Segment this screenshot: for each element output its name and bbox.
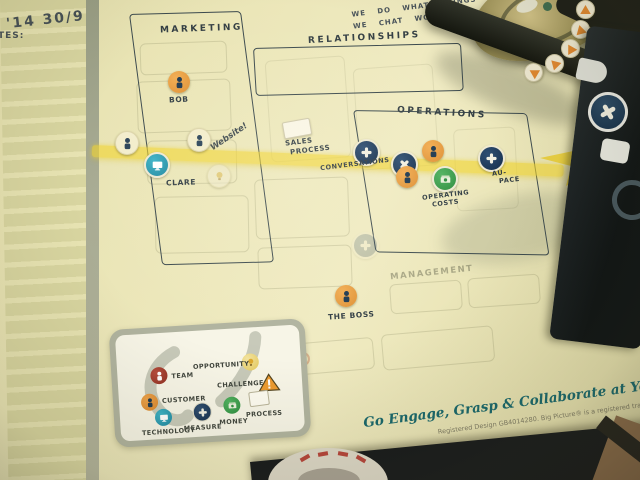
opportunity-bulb-icon: [207, 164, 231, 188]
team-icon: [187, 128, 211, 152]
printed-section-title: MANAGEMENT: [390, 264, 474, 283]
process-rectangle-icon: [248, 390, 270, 407]
team-icon: [115, 131, 139, 155]
template-cell: [299, 337, 376, 375]
warning-sticker-icon: [576, 0, 595, 19]
template-cell: [467, 274, 541, 309]
strip-rectangle-icon: [599, 138, 630, 165]
template-cell: [381, 325, 496, 371]
notes-panel: [0, 0, 99, 480]
money-banknote-icon: [432, 166, 458, 192]
sticker-label-clare: CLARE: [166, 177, 196, 187]
photo-big-picture-canvas: '14 30/9 TES: MANAGEMENT MARKETING RELAT…: [0, 0, 640, 480]
customer-icon: [168, 71, 190, 93]
canvas-frame-bar: [86, 0, 99, 480]
notes-panel-label: TES:: [0, 31, 24, 41]
sticker-label-the-boss: THE BOSS: [328, 309, 375, 321]
template-cell: [389, 280, 463, 315]
customer-icon: [396, 166, 418, 188]
printed-plus-icon: [352, 232, 379, 259]
customer-icon: [335, 285, 357, 307]
legend-label-team: TEAM: [171, 371, 193, 380]
technology-monitor-icon: [144, 152, 170, 178]
legend-inner: TEAM OPPORTUNITY CUSTOMER CHALLENGE TECH…: [115, 324, 305, 441]
legend-key: TEAM OPPORTUNITY CUSTOMER CHALLENGE TECH…: [109, 318, 312, 448]
customer-icon: [422, 140, 444, 162]
relationships-box: [253, 43, 464, 96]
reel-dot: [543, 2, 552, 11]
sticker-label-bob: BOB: [169, 94, 189, 104]
